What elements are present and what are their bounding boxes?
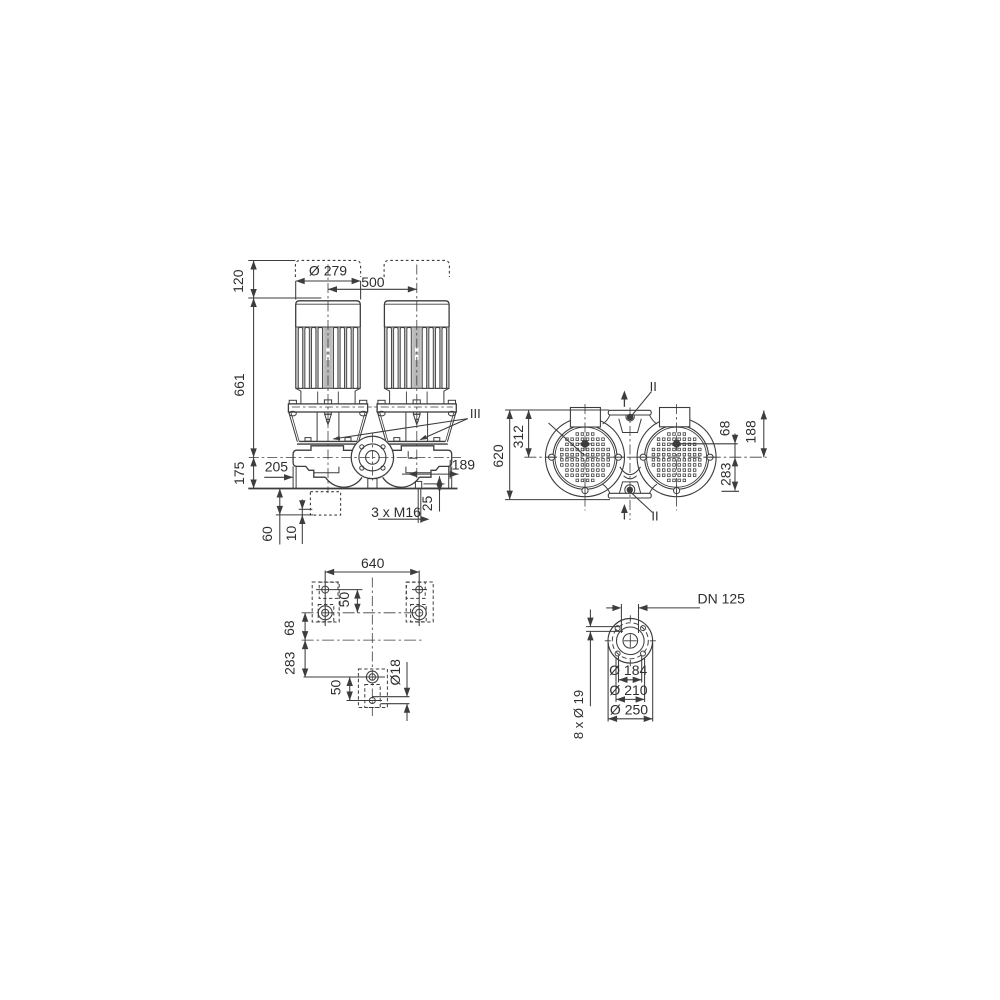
svg-text:3 x M16: 3 x M16 [371, 504, 421, 520]
svg-text:175: 175 [231, 461, 247, 485]
svg-text:68: 68 [717, 420, 733, 436]
svg-text:Ø 279: Ø 279 [309, 262, 347, 278]
svg-text:Ø 184: Ø 184 [609, 662, 647, 678]
svg-text:50: 50 [336, 592, 352, 608]
svg-text:Ø18: Ø18 [387, 659, 403, 686]
svg-text:50: 50 [328, 680, 344, 696]
svg-text:60: 60 [259, 526, 275, 542]
svg-text:283: 283 [717, 462, 733, 486]
svg-text:188: 188 [743, 420, 759, 444]
svg-text:Ø 250: Ø 250 [610, 702, 648, 718]
svg-text:189: 189 [452, 457, 476, 473]
svg-text:620: 620 [490, 444, 506, 468]
svg-text:661: 661 [231, 373, 247, 397]
svg-text:Ø 210: Ø 210 [609, 682, 647, 698]
svg-text:8 x Ø 19: 8 x Ø 19 [571, 690, 586, 739]
svg-text:25: 25 [419, 496, 435, 512]
svg-text:205: 205 [265, 459, 289, 475]
svg-text:10: 10 [283, 526, 299, 542]
svg-text:640: 640 [361, 555, 385, 571]
svg-text:III: III [470, 406, 481, 421]
svg-text:283: 283 [282, 651, 298, 675]
svg-text:II: II [650, 379, 657, 394]
svg-text:120: 120 [230, 269, 246, 293]
svg-text:II: II [651, 508, 658, 523]
svg-text:68: 68 [281, 620, 297, 636]
svg-text:DN 125: DN 125 [698, 591, 746, 607]
svg-text:500: 500 [361, 274, 385, 290]
svg-text:312: 312 [510, 425, 526, 449]
